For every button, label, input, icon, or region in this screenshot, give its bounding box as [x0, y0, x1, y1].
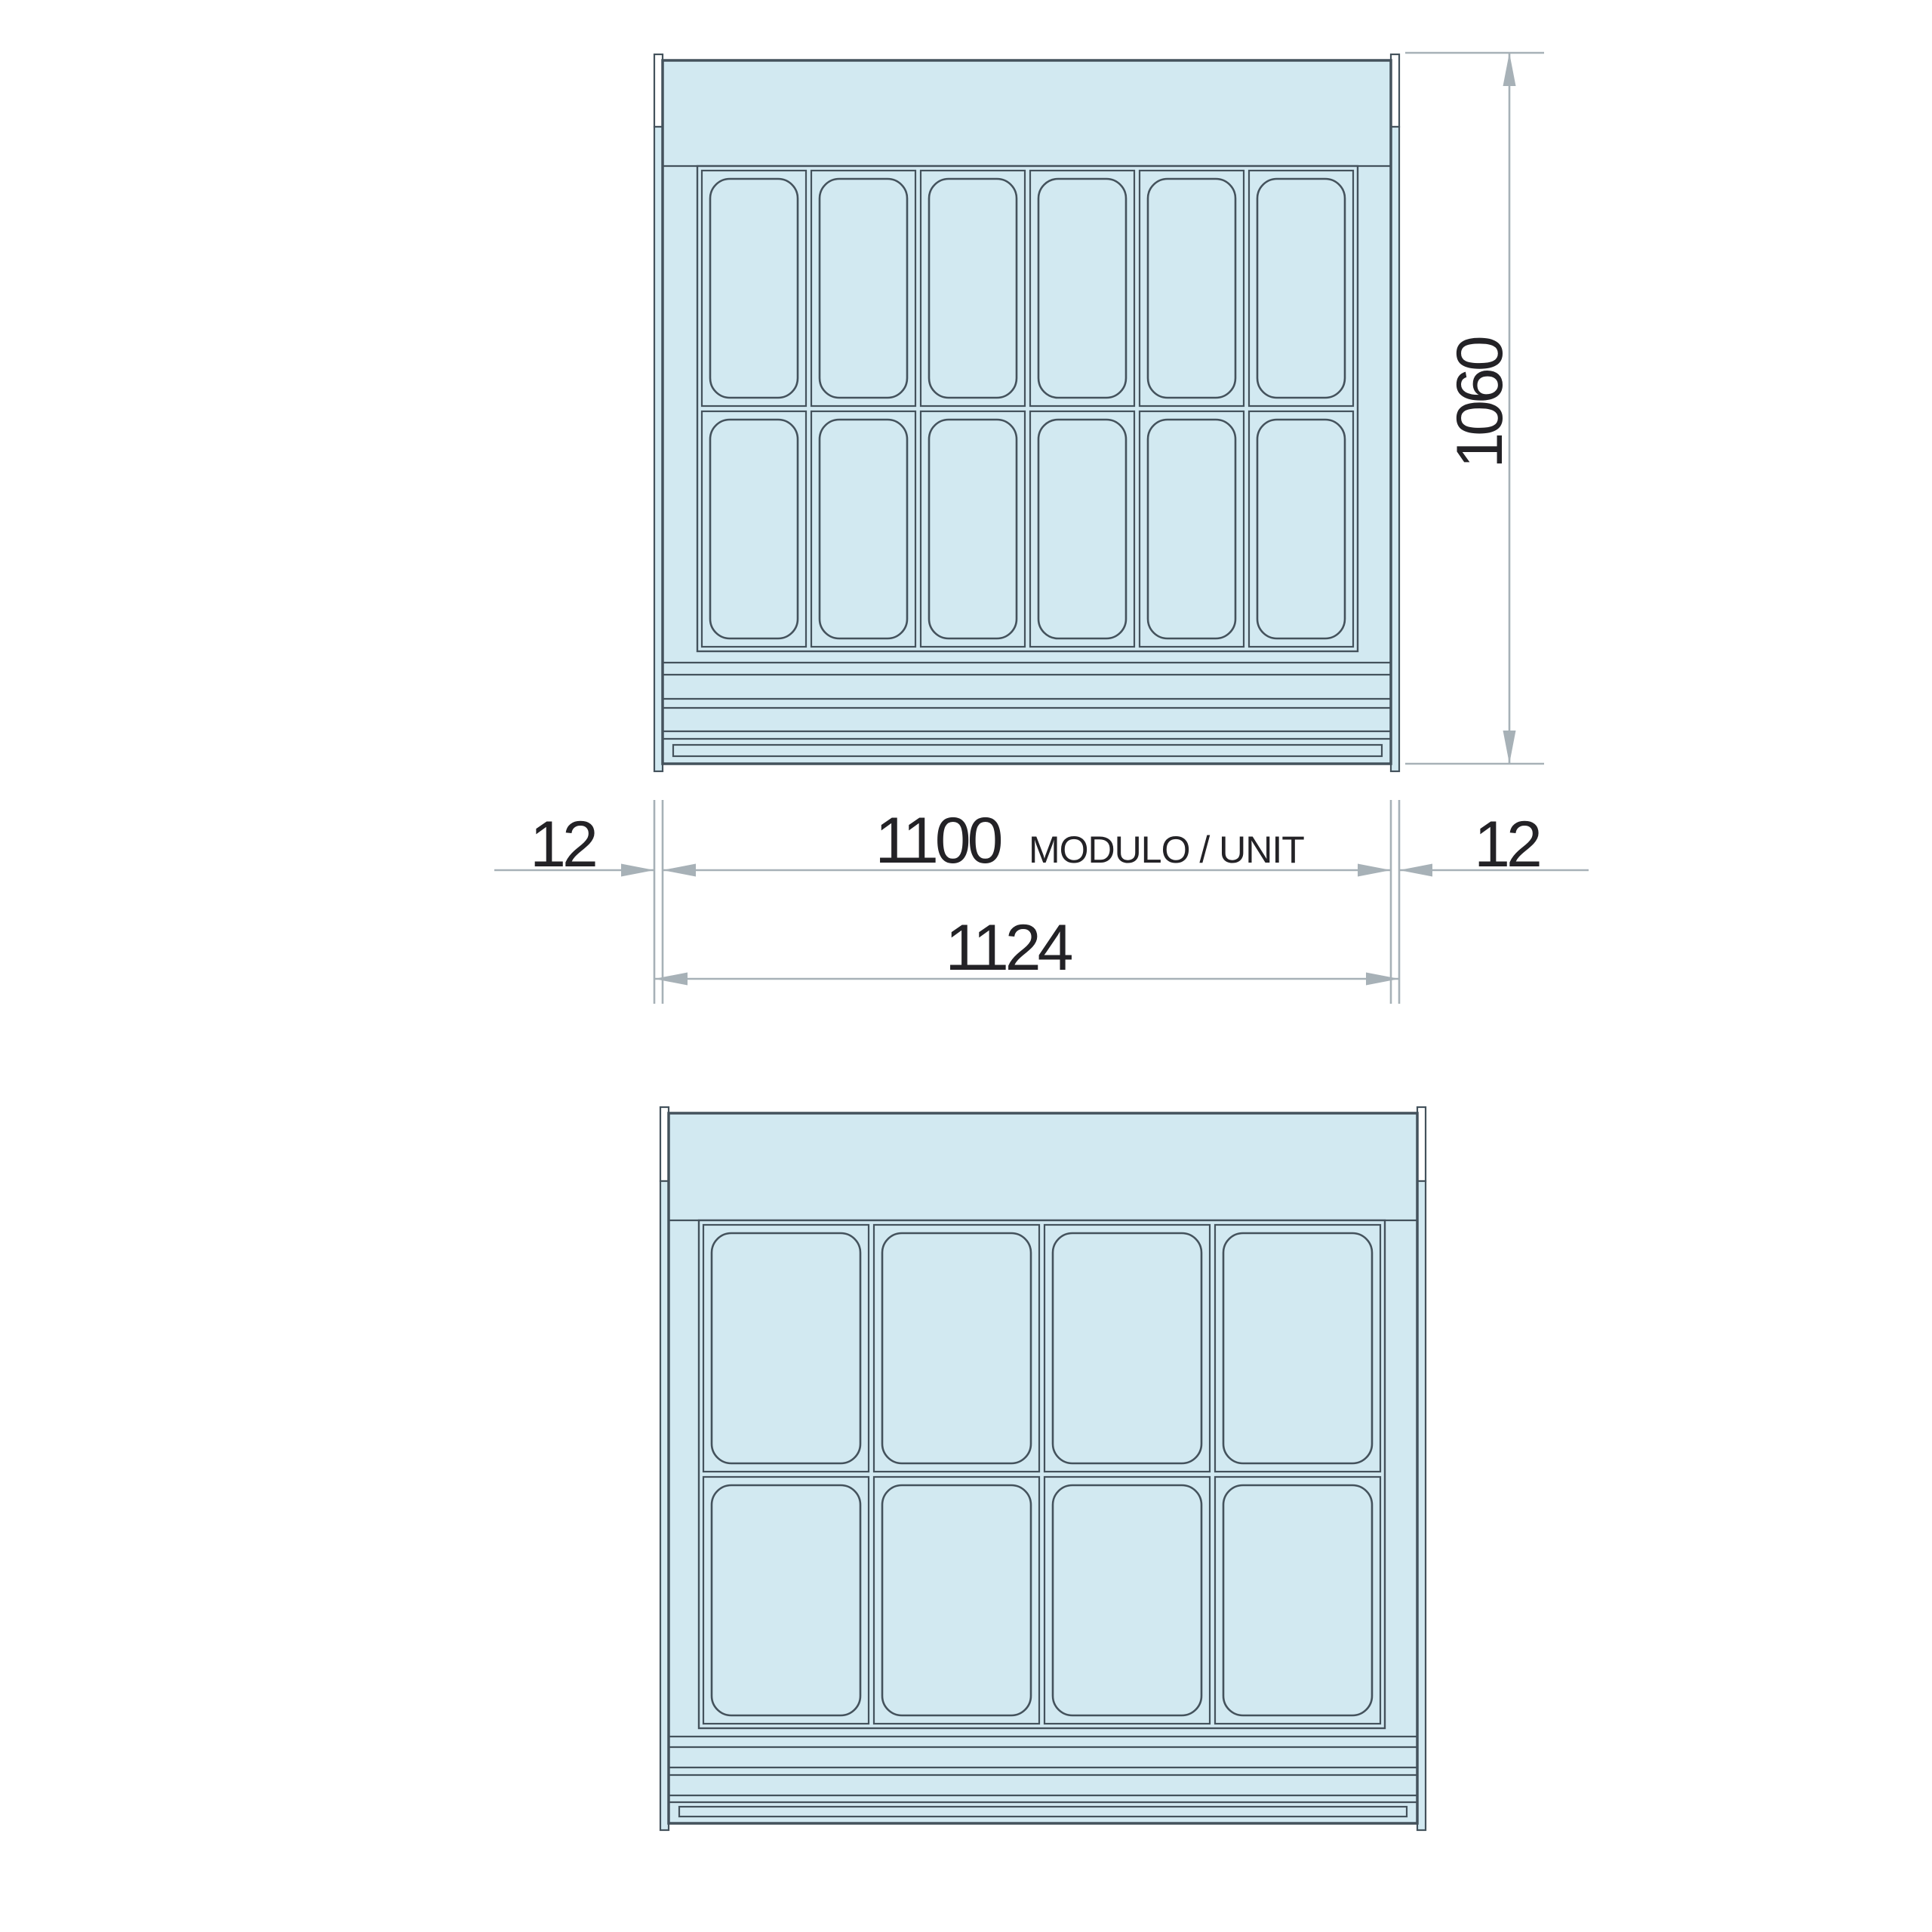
pan	[1053, 1485, 1201, 1715]
arrow-left-icon	[1399, 864, 1432, 877]
overall-width-dimension-label: 1124	[946, 912, 1072, 984]
module-note-label: MODULO / UNIT	[1029, 829, 1304, 871]
arrow-right-icon	[1366, 973, 1399, 986]
height-dimension: 1060	[1405, 53, 1544, 764]
arrow-left-icon	[654, 973, 688, 986]
bottom-unit	[660, 1107, 1426, 1830]
arrow-up-icon	[1503, 53, 1516, 86]
pan	[929, 179, 1017, 398]
pan	[1148, 179, 1235, 398]
pan	[1257, 420, 1345, 638]
pan	[1148, 420, 1235, 638]
pan	[1038, 420, 1126, 638]
kick-plate	[679, 1807, 1407, 1817]
pan	[1257, 179, 1345, 398]
pan	[820, 420, 907, 638]
technical-drawing: 1060 12 1100 MODULO / UNIT 12 1124	[0, 0, 1932, 1932]
kick-plate	[673, 745, 1382, 756]
pan	[710, 420, 798, 638]
side-right-dimension-label: 12	[1474, 808, 1540, 881]
pan	[1223, 1233, 1372, 1463]
arrow-left-icon	[663, 864, 696, 877]
pan	[712, 1233, 860, 1463]
module-dimension-label: 1100	[875, 804, 1001, 877]
pan	[882, 1485, 1031, 1715]
pan	[1053, 1233, 1201, 1463]
arrow-right-icon	[621, 864, 654, 877]
top-unit	[654, 54, 1399, 771]
pan	[710, 179, 798, 398]
side-left-dimension-label: 12	[530, 808, 595, 881]
pan	[1223, 1485, 1372, 1715]
width-dimensions: 12 1100 MODULO / UNIT 12 1124	[494, 800, 1589, 1004]
pan	[929, 420, 1017, 638]
pan	[1038, 179, 1126, 398]
pan	[712, 1485, 860, 1715]
height-dimension-label: 1060	[1444, 337, 1516, 468]
arrow-right-icon	[1358, 864, 1391, 877]
pan	[820, 179, 907, 398]
pan	[882, 1233, 1031, 1463]
arrow-down-icon	[1503, 731, 1516, 764]
